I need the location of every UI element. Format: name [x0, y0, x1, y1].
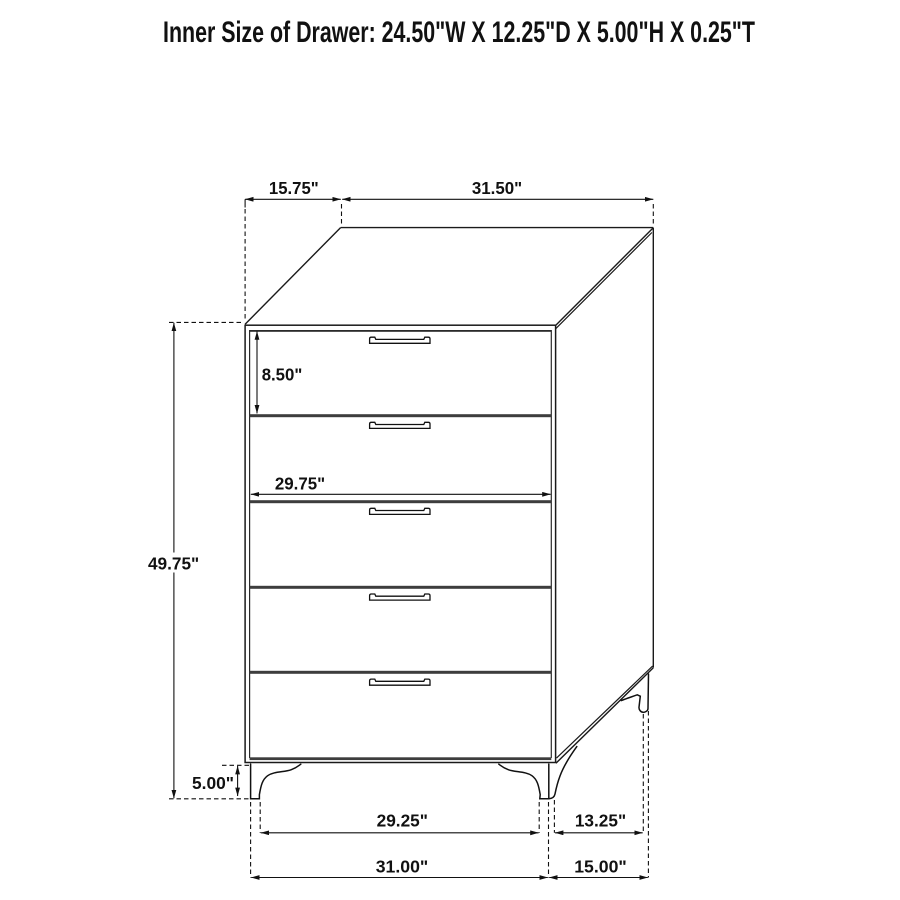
svg-text:15.00": 15.00"	[574, 857, 627, 877]
svg-text:5.00": 5.00"	[192, 773, 234, 793]
svg-text:29.75": 29.75"	[275, 473, 325, 493]
svg-text:15.75": 15.75"	[269, 178, 319, 198]
svg-text:13.25": 13.25"	[575, 811, 626, 831]
svg-text:49.75": 49.75"	[148, 553, 199, 573]
svg-text:31.50": 31.50"	[472, 178, 522, 198]
svg-text:29.25": 29.25"	[377, 811, 428, 831]
svg-text:31.00": 31.00"	[376, 857, 429, 877]
svg-text:Inner Size of Drawer: 24.50"W: Inner Size of Drawer: 24.50"W X 12.25"D …	[163, 16, 755, 49]
svg-text:8.50": 8.50"	[262, 365, 303, 385]
